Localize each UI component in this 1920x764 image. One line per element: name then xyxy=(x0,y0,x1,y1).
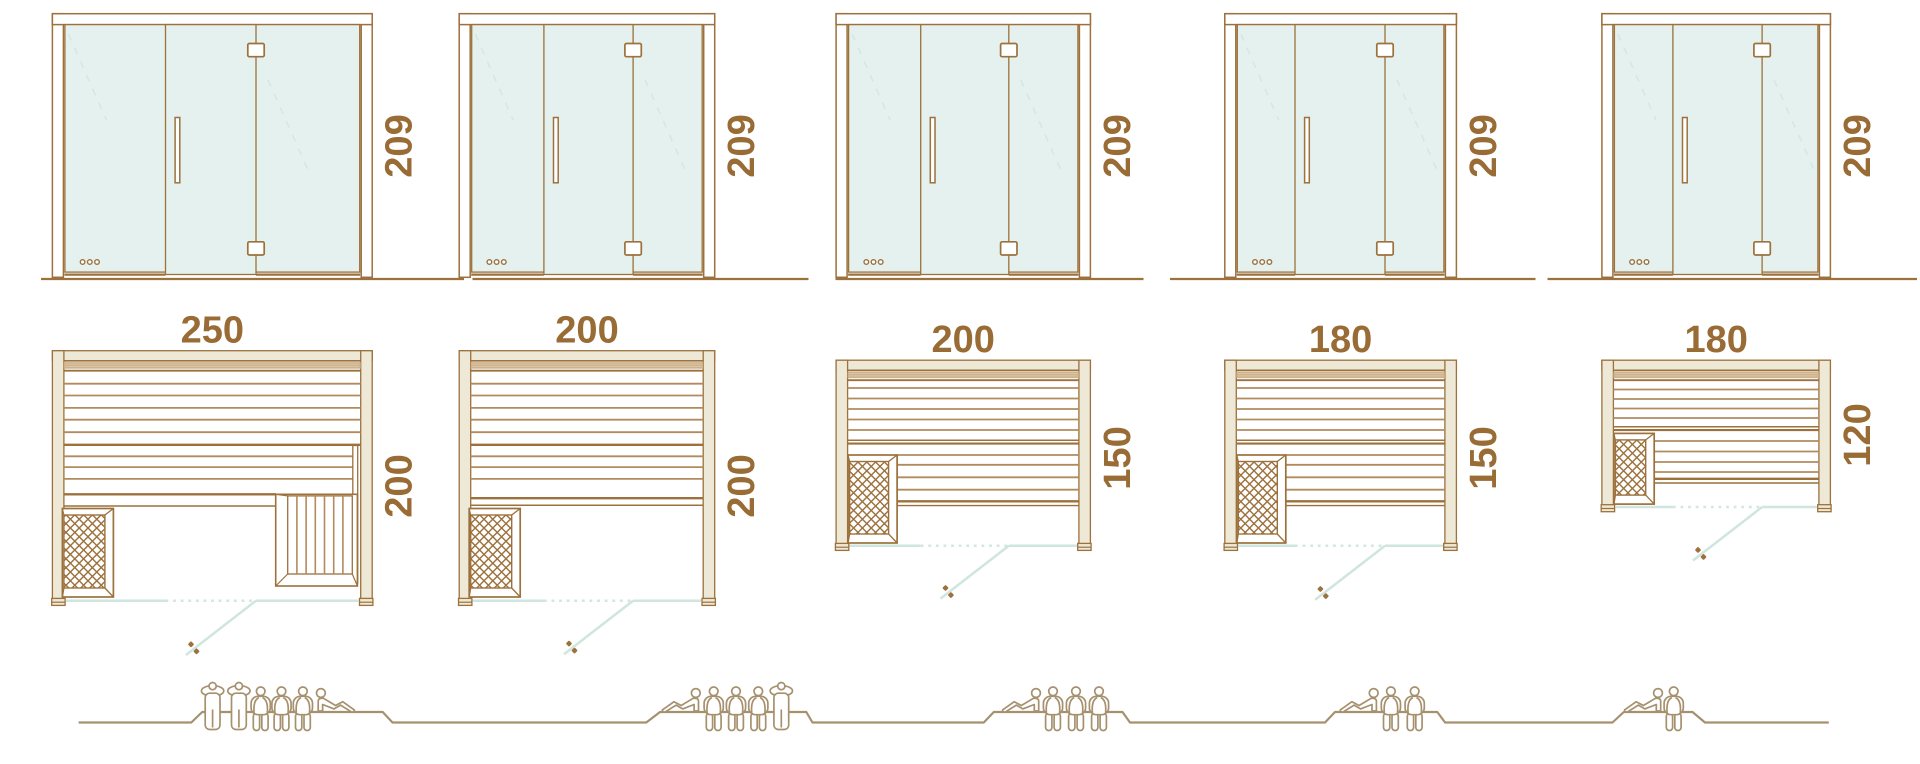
svg-text:120: 120 xyxy=(1837,403,1879,466)
svg-text:200: 200 xyxy=(555,310,618,352)
svg-text:209: 209 xyxy=(1837,114,1879,177)
svg-text:200: 200 xyxy=(931,319,994,361)
svg-text:150: 150 xyxy=(1463,426,1505,489)
svg-text:200: 200 xyxy=(721,454,763,517)
svg-text:250: 250 xyxy=(181,310,244,352)
svg-text:150: 150 xyxy=(1097,426,1139,489)
svg-text:209: 209 xyxy=(1097,114,1139,177)
svg-text:180: 180 xyxy=(1684,319,1747,361)
svg-text:200: 200 xyxy=(379,454,421,517)
svg-text:209: 209 xyxy=(1463,114,1505,177)
svg-text:180: 180 xyxy=(1309,319,1372,361)
svg-text:209: 209 xyxy=(379,114,421,177)
svg-text:209: 209 xyxy=(721,114,763,177)
